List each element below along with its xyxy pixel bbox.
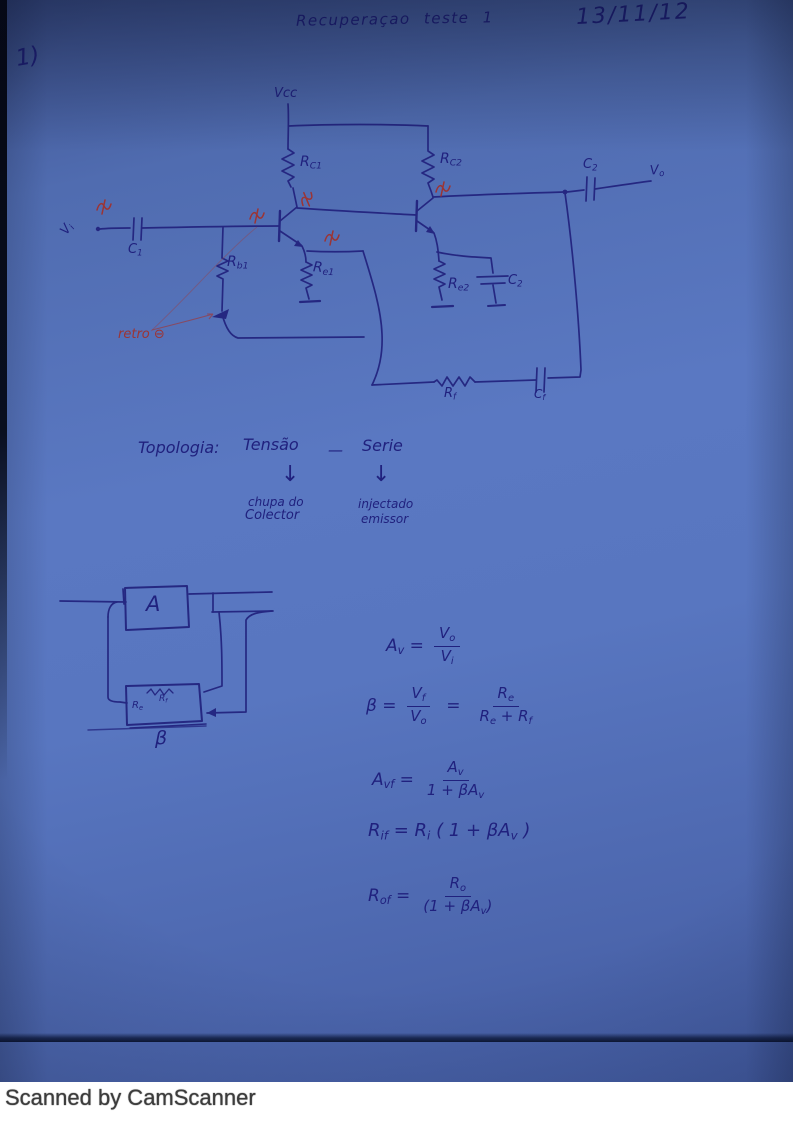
page-title: Recuperaçao teste 1	[296, 10, 494, 28]
amplifier-label: A	[146, 594, 160, 615]
vcc-label: Vcc	[274, 87, 297, 100]
ce2-capacitor	[477, 276, 508, 277]
scan-left-edge	[0, 0, 7, 780]
beta-label: β	[155, 729, 167, 748]
beta-box-re-label: Re	[132, 701, 143, 711]
q2-collector	[417, 198, 433, 211]
retro-node	[212, 309, 229, 319]
formula-beta-fraction-1: Vf Vo	[407, 684, 431, 728]
formula-beta-lhs: β =	[366, 696, 397, 716]
formula-beta-fraction-2: Re Re + Rf	[477, 684, 536, 728]
re2-resistor	[434, 261, 445, 300]
ce2-label: C2	[508, 274, 523, 289]
formula-avf: Avf = Av 1 + βAv	[372, 758, 487, 802]
re2-ground	[432, 306, 453, 307]
cf-label: Cf	[534, 388, 545, 402]
topology-arrow-left: ↓	[281, 464, 299, 486]
phase-mark-q1-base	[250, 209, 264, 223]
emitter-note-line1: injectado	[358, 498, 413, 510]
formula-rof-fraction: Ro (1 + βAv)	[420, 874, 495, 918]
rc1-label: RC1	[300, 155, 322, 171]
emitter-note-line2: emissor	[361, 513, 408, 525]
c1-capacitor	[133, 218, 134, 240]
question-number: 1)	[14, 44, 41, 71]
phase-mark-q1-collector	[297, 189, 316, 208]
formula-rof: Rof = Ro (1 + βAv)	[368, 874, 495, 918]
scanned-page: Recuperaçao teste 1 13/11/12 1) Vcc RC1 …	[0, 0, 793, 1082]
topology-type: Tensão	[243, 437, 299, 453]
rc1-resistor	[282, 149, 294, 187]
collector-note-line1: chupa do	[248, 496, 304, 508]
formula-avf-fraction: Av 1 + βAv	[424, 758, 487, 802]
formula-rif: Rif = Ri ( 1 + βAv )	[368, 820, 530, 842]
formula-beta-equals: =	[446, 696, 460, 716]
topology-mode: Serie	[362, 438, 403, 454]
rf-resistor	[434, 377, 475, 386]
handwritten-sketch	[0, 0, 793, 1082]
paper-bottom-edge	[0, 1033, 793, 1042]
q1-collector	[280, 188, 297, 221]
circuit-ink	[96, 104, 651, 392]
rb1-label: Rb1	[227, 255, 248, 271]
c2-out-label: C2	[583, 158, 598, 173]
formula-av-fraction: Vo Vi	[434, 624, 460, 668]
q1-base-bar	[279, 211, 280, 241]
topology-heading: Topologia:	[138, 440, 220, 456]
formula-rif-text: Rif = Ri ( 1 + βAv )	[368, 820, 530, 842]
rc2-label: RC2	[440, 152, 462, 168]
re2-label: Re2	[448, 277, 469, 293]
page-date: 13/11/12	[576, 1, 692, 29]
collector-note-line2: Colector	[245, 509, 299, 522]
c2-capacitor	[586, 177, 587, 201]
formula-beta: β = Vf Vo = Re Re + Rf	[366, 684, 535, 728]
re1-ground	[300, 301, 320, 302]
topology-dash: —	[328, 443, 343, 458]
red-annotations	[97, 182, 450, 331]
beta-box-rf-label: Rf	[159, 695, 167, 705]
footer-text: Scanned by CamScanner	[5, 1085, 256, 1111]
c1-label: C1	[128, 243, 143, 258]
formula-av-lhs: Av =	[386, 636, 424, 657]
re1-resistor	[301, 262, 312, 299]
retro-label: retro ⊖	[118, 328, 165, 341]
camscanner-footer: Scanned by CamScanner	[0, 1082, 793, 1122]
phase-mark-q1-emitter	[325, 231, 339, 245]
formula-rof-lhs: Rof =	[368, 886, 410, 907]
phase-mark-input	[97, 200, 111, 214]
rf-label: Rf	[444, 387, 456, 402]
formula-avf-lhs: Avf =	[372, 770, 414, 791]
block-diagram	[60, 586, 273, 730]
phase-mark-q2-collector	[436, 182, 450, 196]
re1-label: Re1	[312, 260, 334, 277]
topology-arrow-right: ↓	[372, 464, 390, 486]
rc2-resistor	[422, 126, 434, 197]
retro-arrow-2	[151, 227, 257, 331]
q2-base-bar	[416, 201, 417, 231]
vo-label: Vo	[649, 163, 664, 179]
formula-av: Av = Vo Vi	[386, 624, 460, 668]
vcc-rail	[289, 125, 428, 127]
